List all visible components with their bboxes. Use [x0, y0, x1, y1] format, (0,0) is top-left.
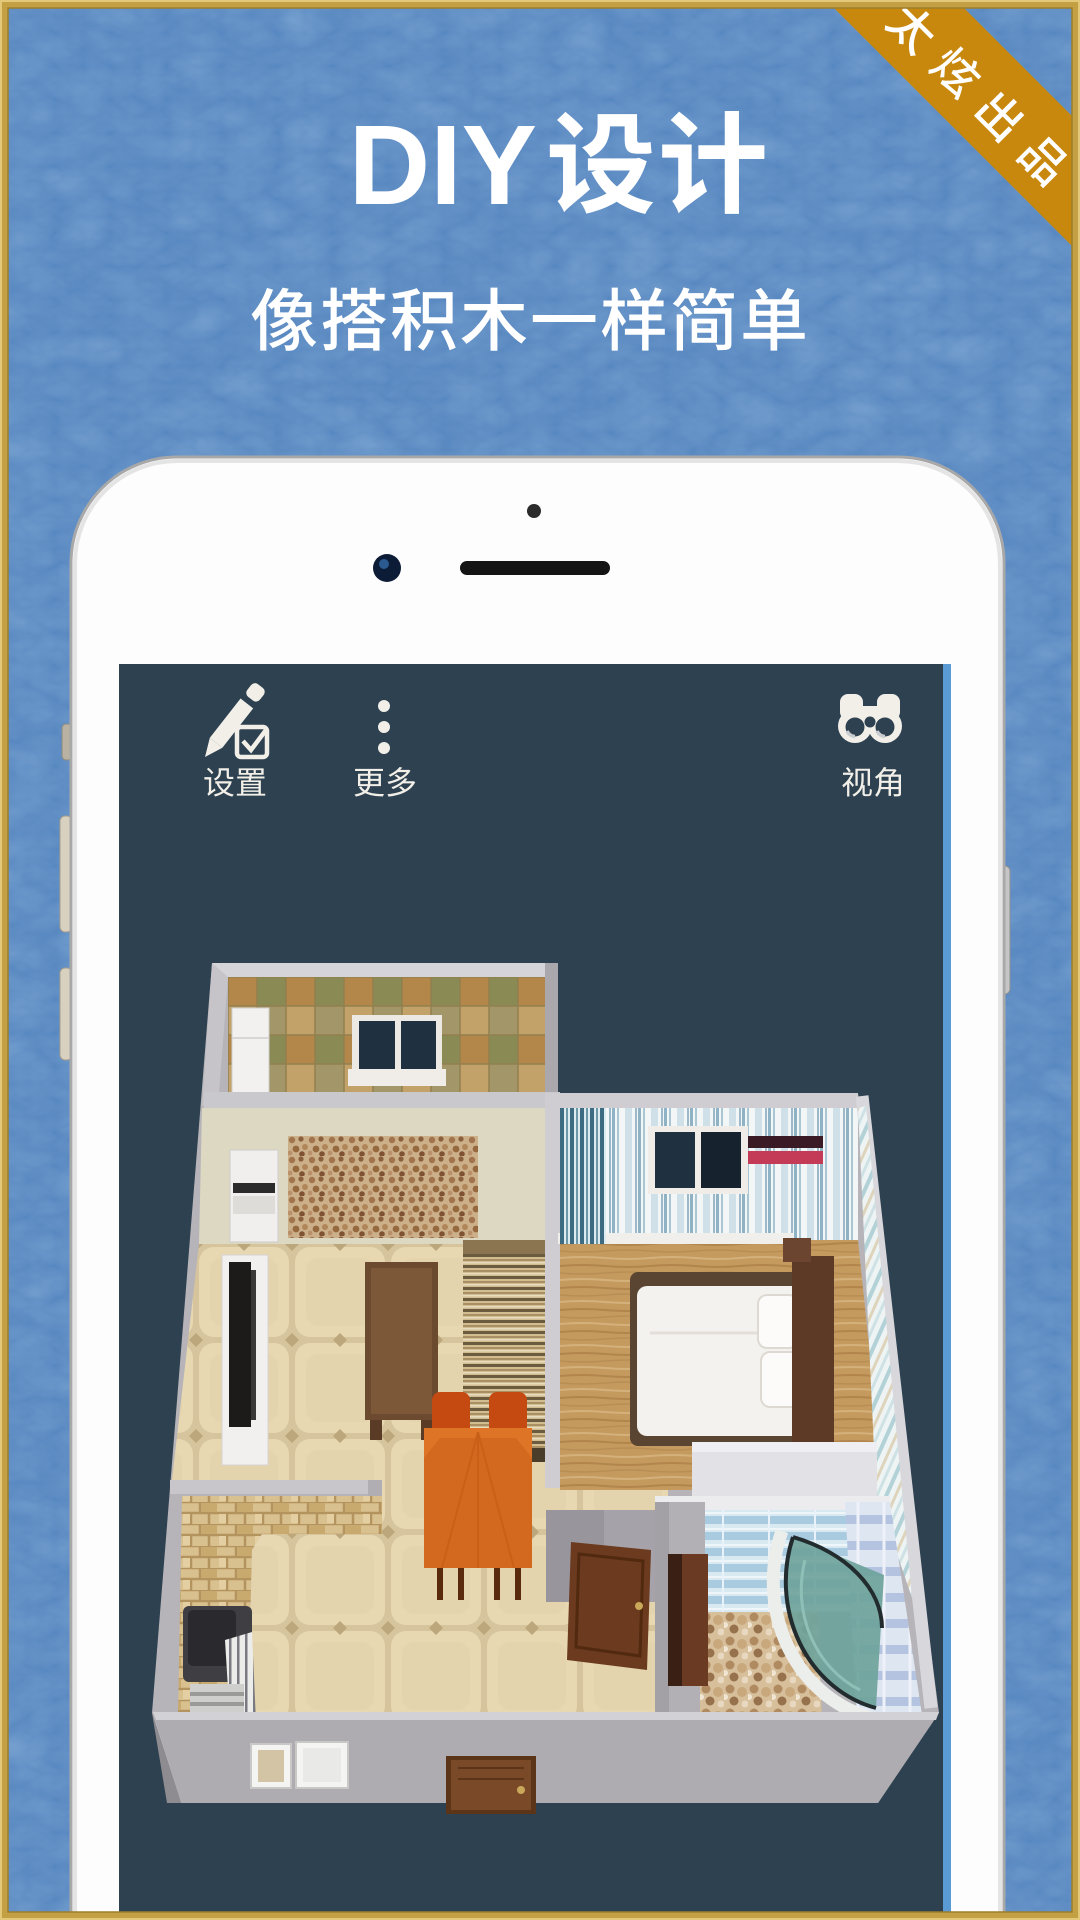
svg-text:DIY: DIY	[349, 102, 537, 228]
